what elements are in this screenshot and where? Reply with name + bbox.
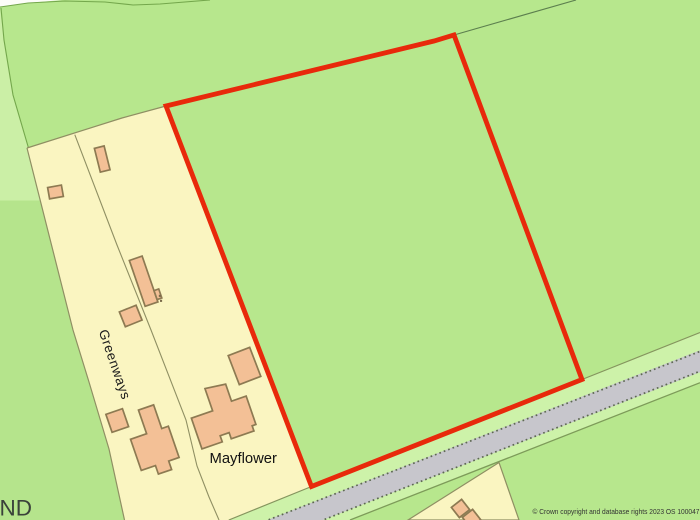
svg-text:© Crown copyright and database: © Crown copyright and database rights 20… — [533, 507, 700, 516]
svg-text:Mayflower: Mayflower — [210, 451, 277, 467]
svg-text:ND: ND — [0, 495, 32, 520]
